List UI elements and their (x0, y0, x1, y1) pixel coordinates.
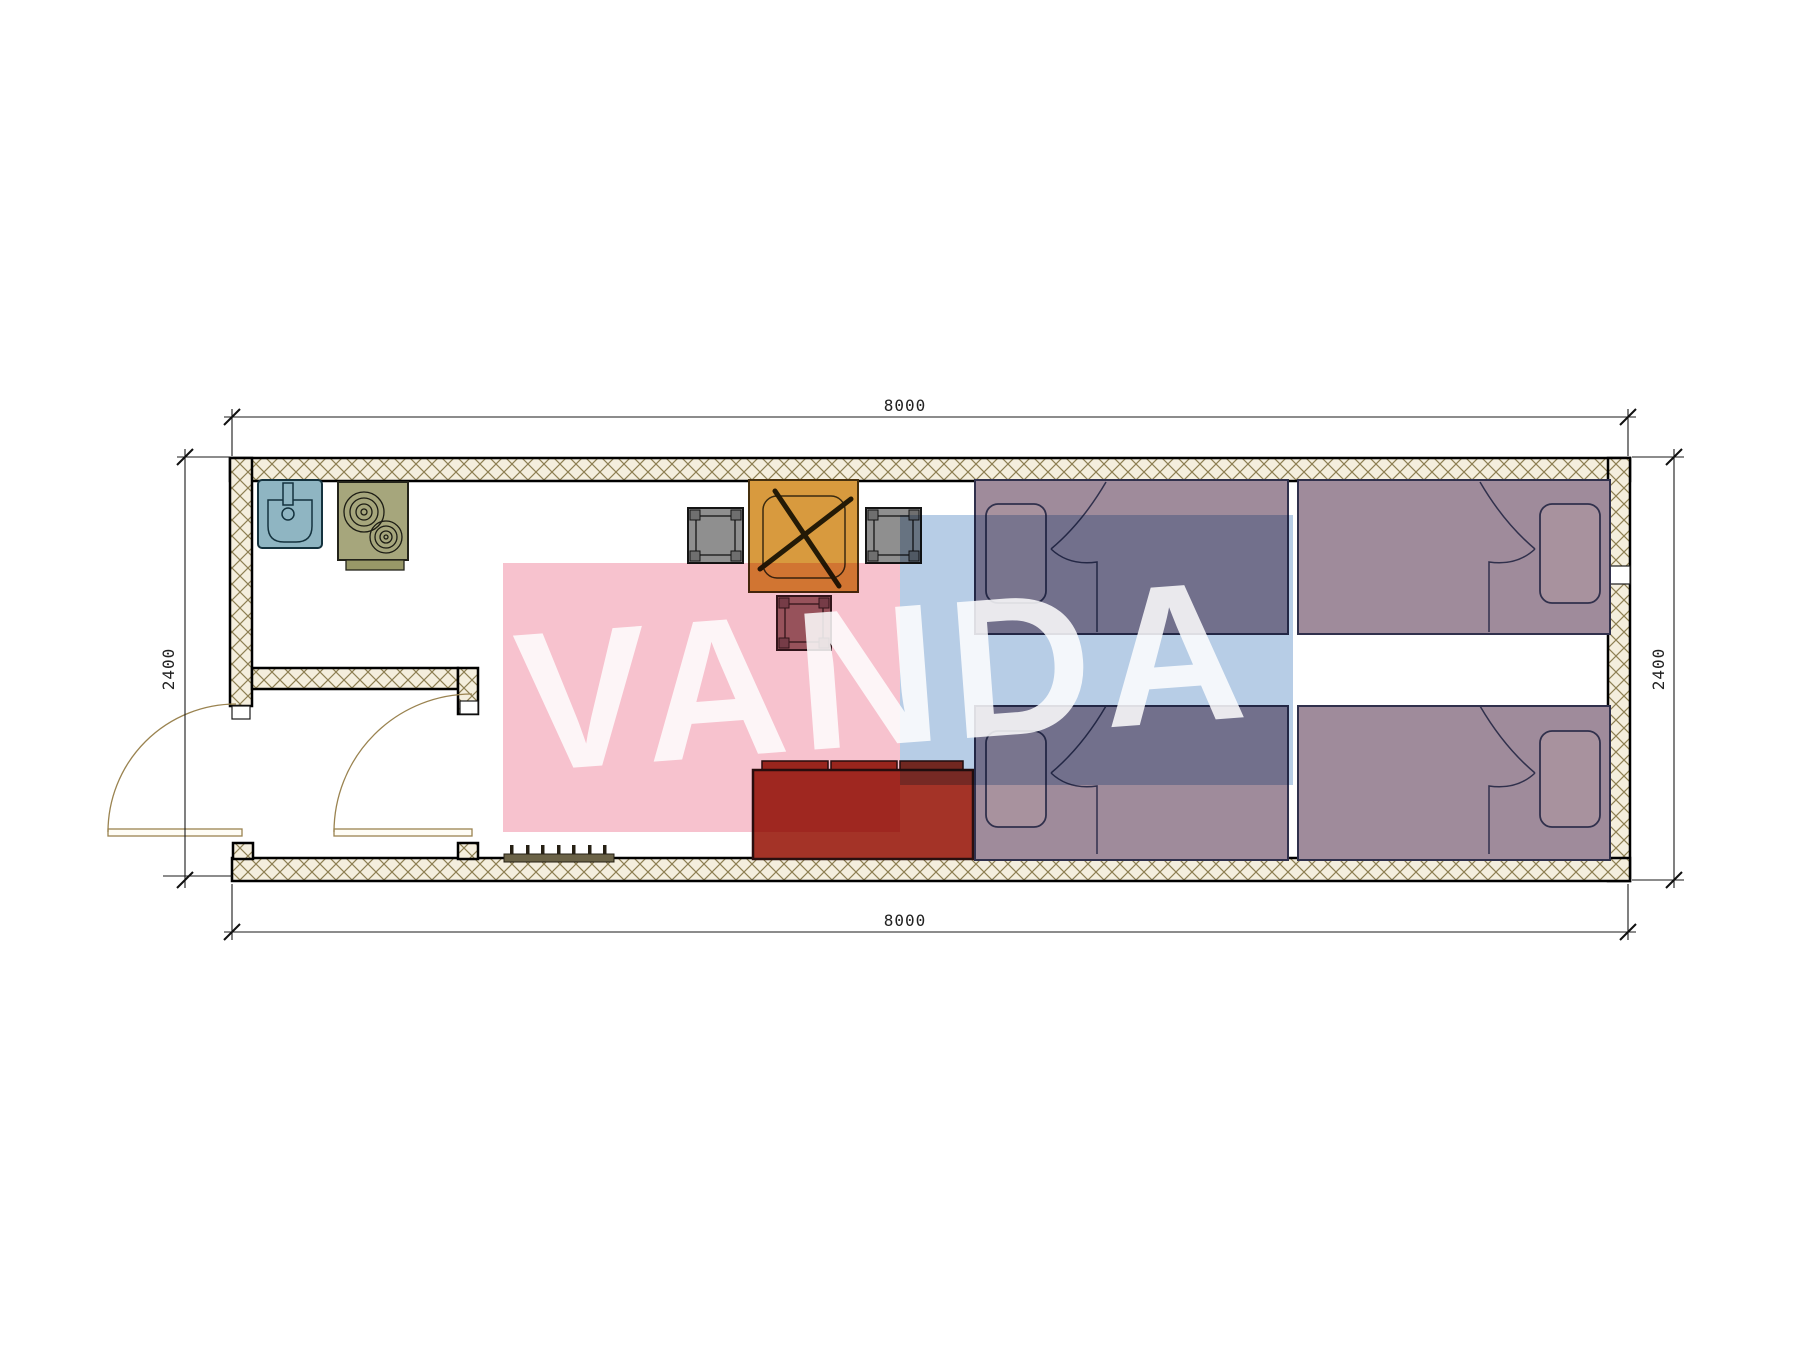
wall-left (230, 458, 252, 706)
door-jamb-left-wall (232, 706, 250, 719)
wall-right (1608, 458, 1630, 881)
entry-door-leaf (108, 829, 242, 836)
door-post-left (233, 843, 253, 859)
entry-door-swing-arc (108, 704, 236, 832)
dimension-bottom: 8000 (884, 911, 927, 930)
wall-top (230, 458, 1630, 481)
dimension-right: 2400 (1649, 648, 1668, 691)
dimension-top: 8000 (884, 396, 927, 415)
stove-base (346, 560, 404, 570)
stove (338, 482, 408, 570)
pillow (1540, 504, 1600, 603)
wall-vestibule (252, 668, 458, 689)
interior-door-swing-arc (334, 694, 472, 832)
doormat-grille (504, 845, 614, 862)
sink (258, 480, 322, 548)
pillow (1540, 731, 1600, 827)
dimension-left: 2400 (159, 648, 178, 691)
door-jamb-interior (460, 701, 478, 714)
floor-plan-canvas: VANDA 8000 8000 2400 2400 (0, 0, 1800, 1350)
door-post-right (458, 843, 478, 859)
doors (108, 694, 472, 836)
kitchen (258, 480, 408, 570)
wall-bottom (232, 858, 1630, 881)
floor-plan-drawing: VANDA 8000 8000 2400 2400 (0, 0, 1800, 1350)
interior-door-leaf (334, 829, 472, 836)
chair-left (688, 508, 743, 563)
right-wall-notch (1610, 566, 1630, 584)
